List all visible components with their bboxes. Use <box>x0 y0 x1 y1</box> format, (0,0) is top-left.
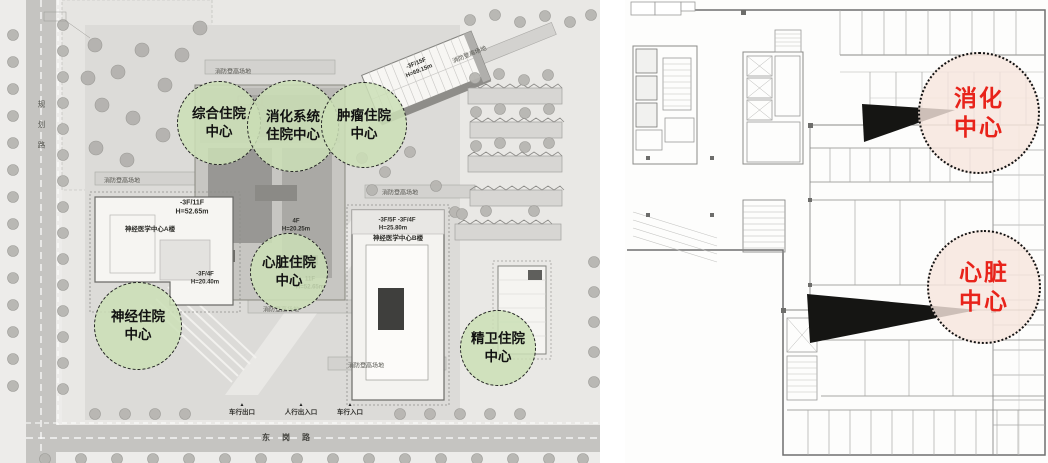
building-b-neuro-b <box>347 205 449 405</box>
left-site-plan-drawing <box>0 0 600 463</box>
right-floor-plan: 消化 中心 心脏 中心 <box>625 0 1048 463</box>
bubble-digestive-center: 消化 中心 <box>918 52 1040 174</box>
bubble-psychiatric-inpatient: 精卫住院 中心 <box>460 310 536 386</box>
two-plan-figure: 消防登高场地 消防登高场地 消防登高场地 消防登高场地 消防登高场地 消防登高场… <box>0 0 1048 463</box>
bubble-oncology-inpatient: 肿瘤住院 中心 <box>321 82 407 168</box>
road-name-planned-road: 规划路 <box>36 100 47 162</box>
bubble-cardiac-inpatient: 心脏住院 中心 <box>250 233 328 311</box>
bubble-cardiac-center: 心脏 中心 <box>927 230 1041 344</box>
left-site-plan: 消防登高场地 消防登高场地 消防登高场地 消防登高场地 消防登高场地 消防登高场… <box>0 0 600 463</box>
road-name-donggang-road: 东岗路 <box>262 432 322 443</box>
bubble-neurology-inpatient: 神经住院 中心 <box>94 282 182 370</box>
